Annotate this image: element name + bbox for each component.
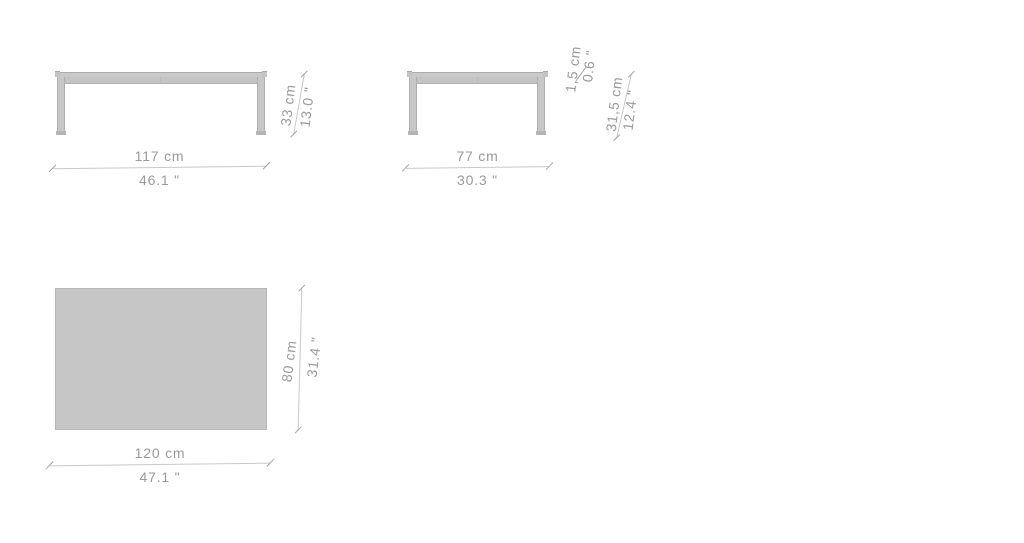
apron-seam-side bbox=[477, 77, 478, 84]
dimension-tick-top bbox=[298, 284, 305, 291]
dimension-line bbox=[298, 288, 303, 431]
table-foot-side-right bbox=[536, 131, 546, 135]
dimension-label-cm: 80 cm bbox=[278, 339, 299, 383]
drawing-canvas: 117 cm 46.1 " 33 cm 13.0 " 77 cm bbox=[0, 0, 1024, 543]
table-leg-front-left bbox=[57, 77, 65, 131]
table-foot-side-left bbox=[408, 131, 418, 135]
apron-front bbox=[58, 77, 264, 84]
table-foot-front-left bbox=[56, 131, 66, 135]
dimension-tick-bottom bbox=[290, 131, 297, 138]
dimension-tick-bottom bbox=[295, 426, 302, 433]
tabletop-outline bbox=[55, 288, 267, 430]
dimension-label-cm: 120 cm bbox=[50, 445, 270, 461]
dimension-line bbox=[406, 166, 549, 169]
table-leg-front-right bbox=[257, 77, 265, 131]
dimension-label-inch: 46.1 " bbox=[53, 172, 266, 188]
dimension-label-cm: 77 cm bbox=[406, 148, 549, 164]
dimension-label-inch: 0.6 " bbox=[579, 49, 599, 83]
dimension-label-inch: 47.1 " bbox=[50, 469, 270, 485]
dimension-line bbox=[50, 463, 270, 467]
dimension-tick-top bbox=[628, 71, 635, 78]
apron-seam-front bbox=[160, 77, 161, 84]
table-foot-front-right bbox=[256, 131, 266, 135]
dimension-tick-bottom bbox=[613, 134, 620, 141]
dimension-tick-left bbox=[402, 164, 410, 172]
dimension-tick-top bbox=[301, 70, 308, 77]
dimension-label-cm: 117 cm bbox=[53, 148, 266, 164]
dimension-label-inch: 12.4 " bbox=[620, 89, 641, 132]
table-leg-side-left bbox=[409, 77, 417, 131]
dimension-label-inch: 31.4 " bbox=[304, 336, 325, 379]
dimension-line bbox=[53, 166, 266, 170]
table-leg-side-right bbox=[537, 77, 545, 131]
dimension-label-inch: 30.3 " bbox=[406, 172, 549, 188]
dimension-label-inch: 13.0 " bbox=[297, 86, 318, 129]
